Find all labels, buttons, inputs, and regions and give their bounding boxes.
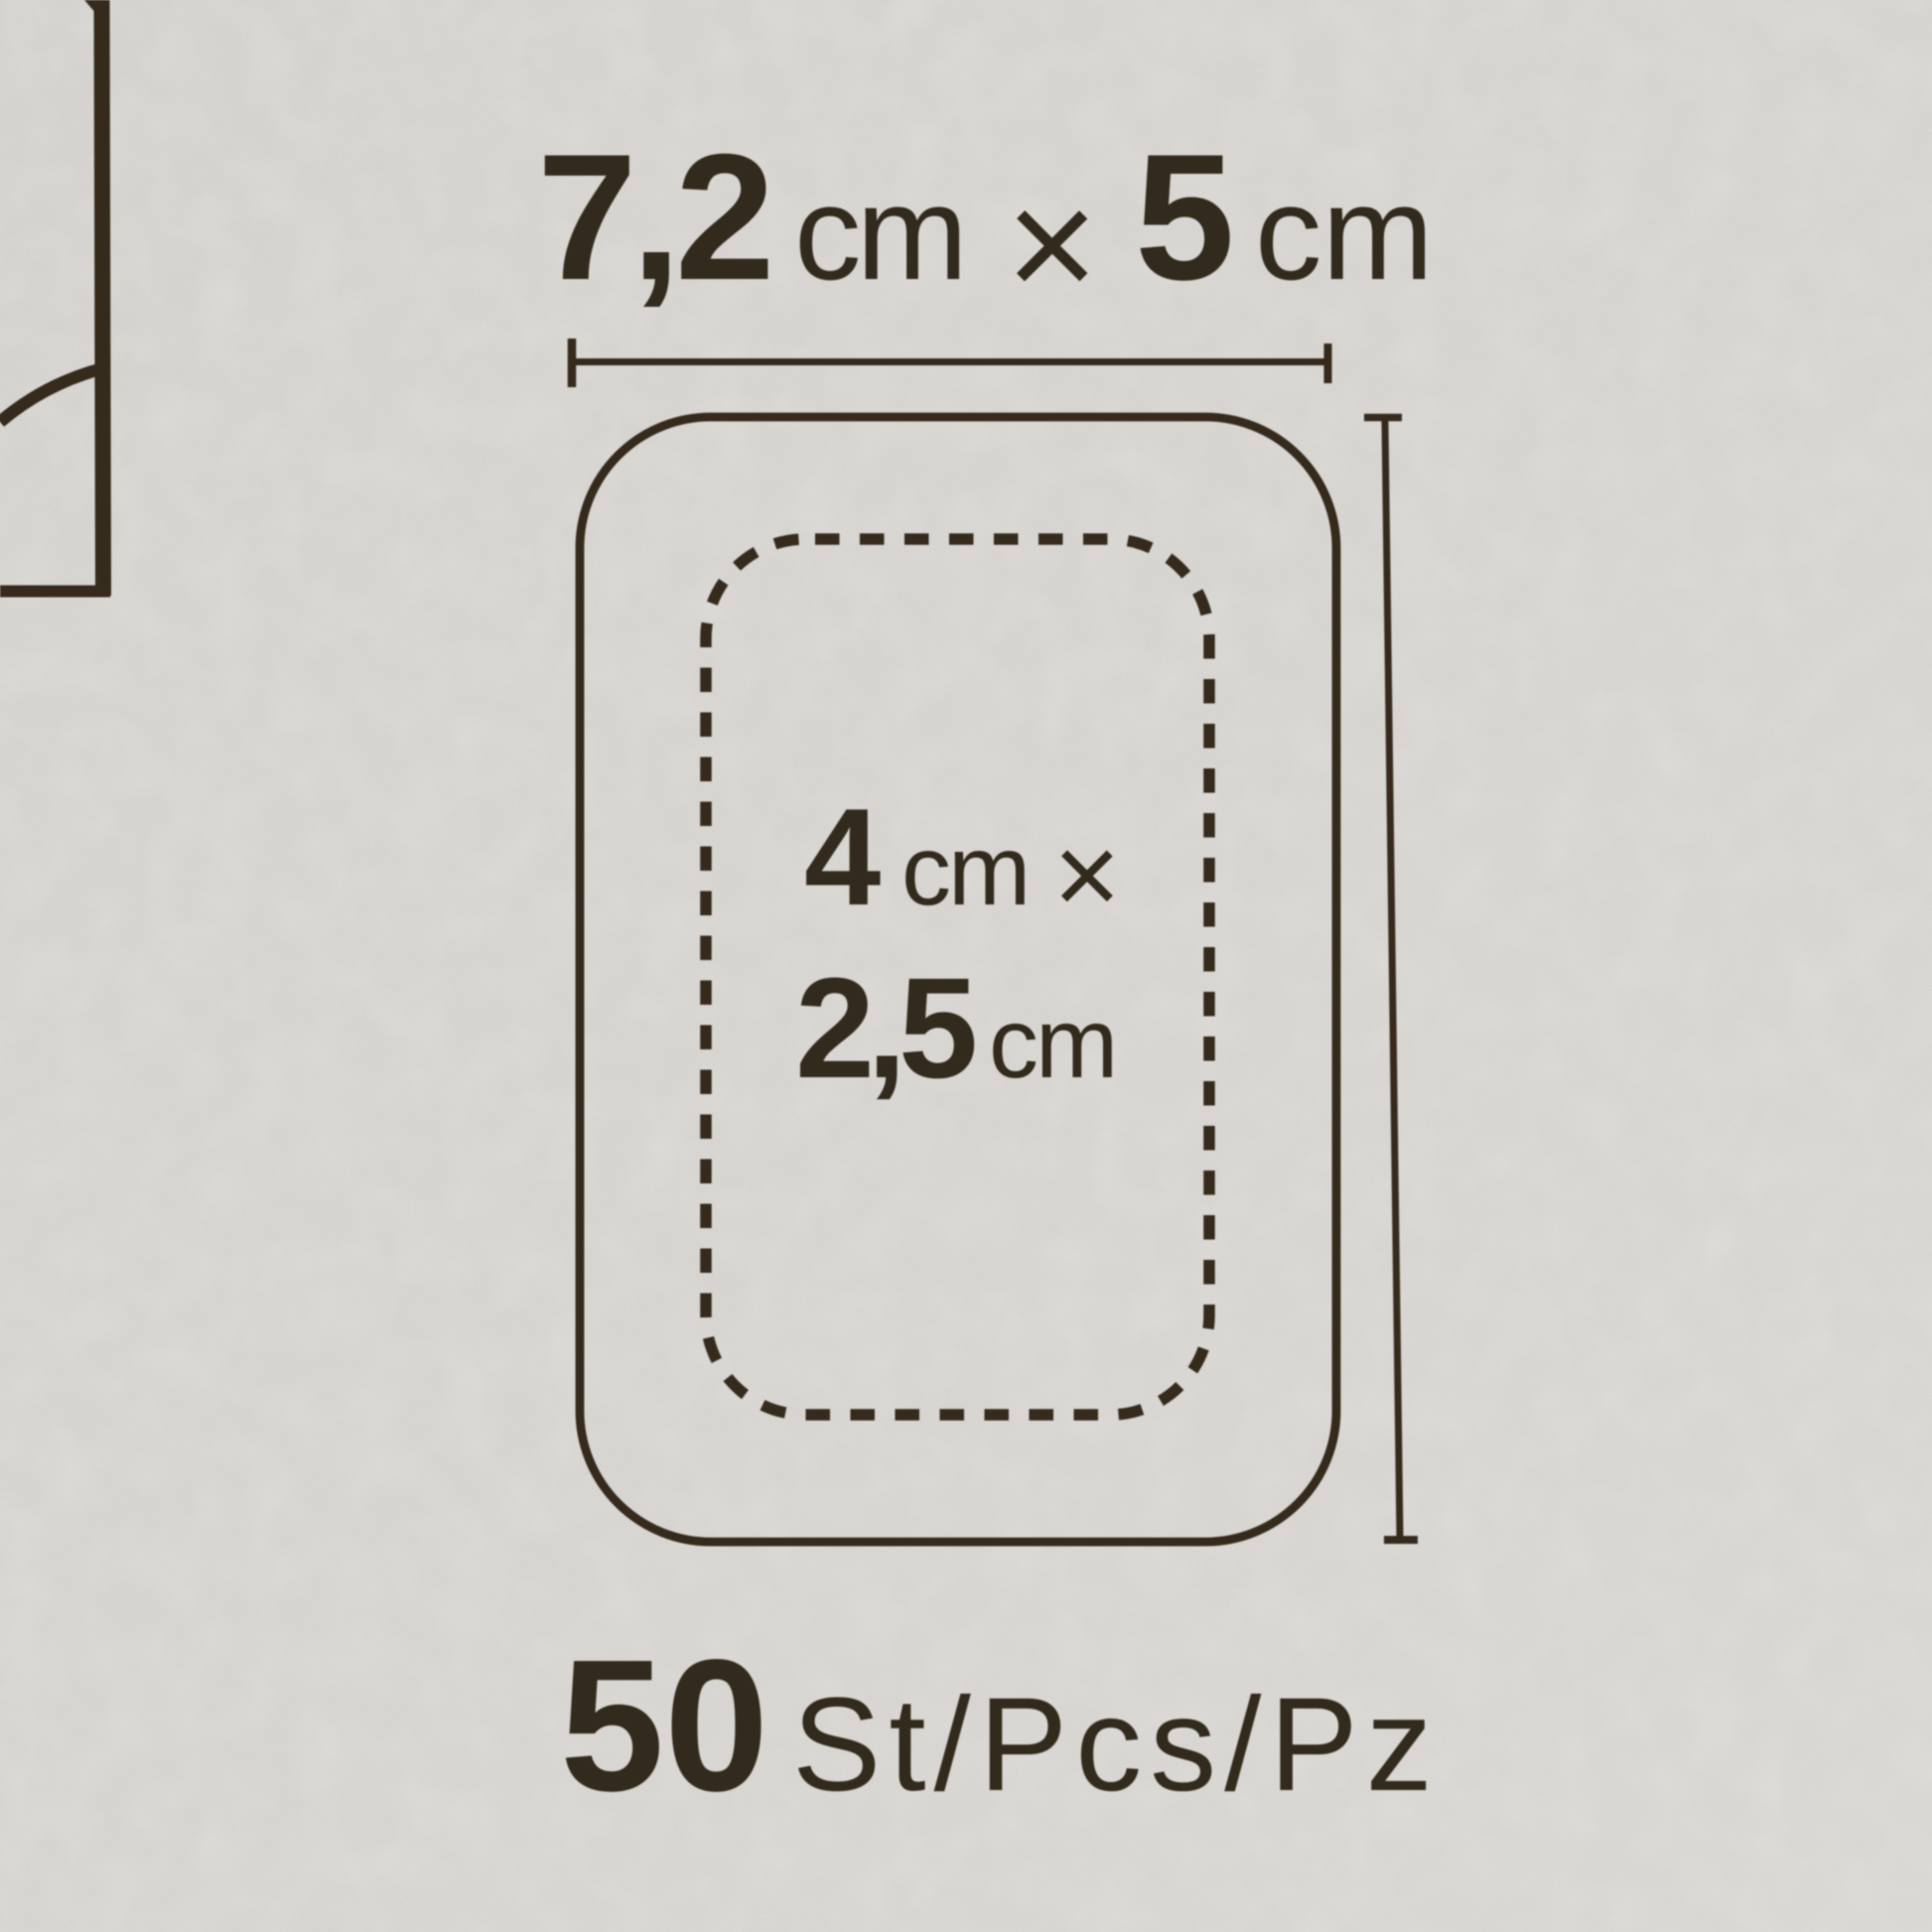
svg-text:50: 50 (560, 1621, 768, 1831)
svg-text:7,2: 7,2 (537, 117, 769, 318)
svg-text:cm: cm (901, 815, 1028, 926)
svg-text:5: 5 (1135, 117, 1235, 318)
svg-text:2,5: 2,5 (795, 948, 975, 1108)
svg-text:cm: cm (1255, 158, 1434, 308)
svg-text:×: × (1006, 155, 1098, 333)
svg-text:St/Pcs/Pz: St/Pcs/Pz (792, 1671, 1441, 1819)
svg-text:cm: cm (794, 158, 963, 308)
svg-text:×: × (1053, 810, 1121, 939)
svg-text:4: 4 (804, 780, 881, 934)
svg-text:cm: cm (989, 988, 1115, 1099)
